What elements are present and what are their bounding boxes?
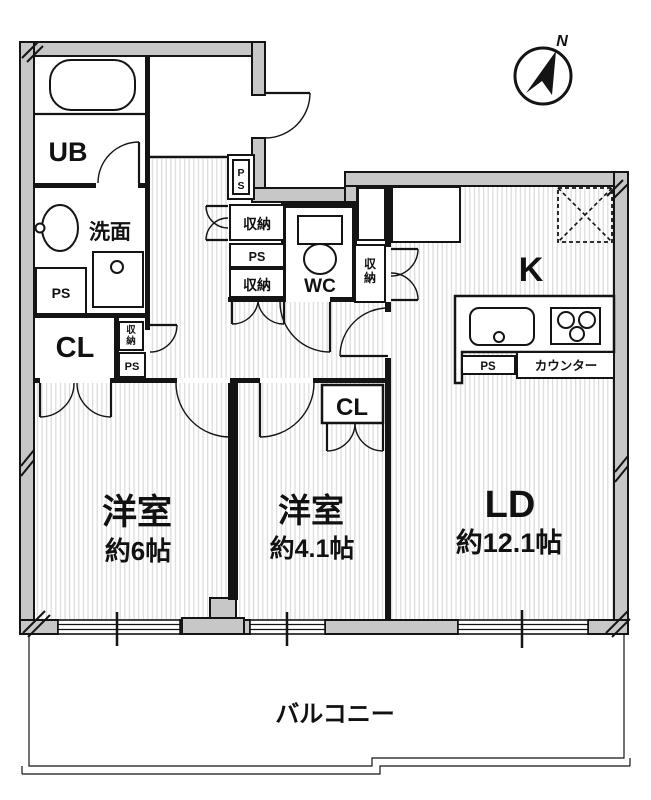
storage-bottom-label: 収納 [243, 277, 271, 293]
toilet-label: WC [304, 276, 336, 297]
wall-ld-divider [385, 358, 391, 620]
counter-label: カウンター [535, 358, 598, 373]
ps-entry-label: P [237, 167, 244, 179]
wall-under-entrance [252, 188, 355, 202]
ps-washroom-label: PS [52, 285, 71, 301]
window-western6 [58, 620, 180, 634]
ps-hall-label: PS [125, 361, 140, 373]
hall-floor [150, 302, 385, 378]
room-labels: 洋室 約6帖 洋室 約4.1帖 LD 約12.1帖 [102, 484, 562, 566]
vanity-sink [42, 205, 78, 251]
entrance-area [150, 56, 252, 156]
western6-area: 約6帖 [105, 536, 171, 566]
closet-center-label: CL [336, 394, 368, 421]
storage-east-label: 収 [364, 257, 377, 271]
ps-kitchen-label: PS [480, 361, 496, 373]
stove-burner [579, 312, 595, 328]
western41-area: 約4.1帖 [270, 534, 355, 563]
pillar-base [182, 618, 244, 634]
drain [111, 261, 123, 273]
wall-left [20, 42, 34, 634]
washroom-label: 洗面 [89, 221, 131, 244]
floor-plan: バルコニー [0, 0, 651, 800]
wall-right [614, 172, 628, 634]
bath-label: UB [49, 137, 88, 167]
storage-top-label: 収納 [243, 216, 271, 232]
cabinet-large [392, 187, 460, 242]
cabinet-small [358, 188, 385, 240]
bathtub [50, 60, 135, 110]
sink-drain [494, 332, 504, 342]
wall-kitchen-top [345, 172, 614, 186]
toilet-bowl [304, 244, 336, 274]
balcony-label: バルコニー [275, 701, 395, 728]
corridor-floor [150, 159, 228, 302]
compass-north-label: N [556, 33, 568, 50]
ld-area: 約12.1帖 [456, 527, 563, 558]
western41-label: 洋室 [278, 492, 344, 529]
kitchen-label: K [519, 251, 544, 289]
floor-plan-page: バルコニー [0, 0, 651, 800]
ps-entry-label: S [237, 180, 244, 192]
wall-bottom-c [325, 620, 458, 634]
stove-burner [570, 327, 584, 341]
storage-mini-label: 納 [126, 335, 136, 347]
closet-west-label: CL [56, 332, 95, 364]
faucet [36, 224, 45, 233]
wall-entry-upper [252, 42, 265, 95]
toilet-tank [298, 216, 342, 244]
ld-label: LD [485, 484, 536, 526]
ps-corridor-label: PS [249, 250, 266, 264]
wall-top [20, 42, 265, 56]
western6-label: 洋室 [102, 492, 172, 532]
stove-burner [558, 312, 574, 328]
storage-mini-label: 収 [126, 324, 136, 336]
storage-east-label: 納 [364, 270, 376, 285]
